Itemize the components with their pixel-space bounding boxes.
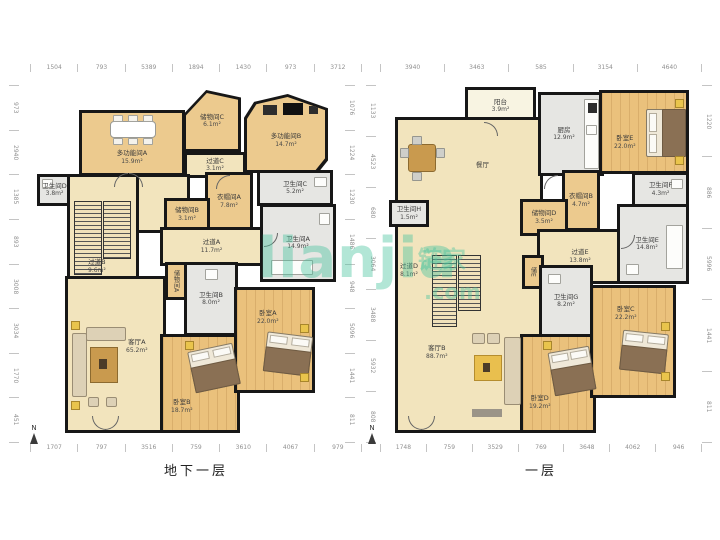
room-label: 过道D8.1m² <box>400 263 418 278</box>
dimension-label: 1220 <box>702 85 712 156</box>
chair-icon <box>436 148 445 158</box>
dimension-label: 3154 <box>573 64 637 72</box>
room-label: 多功能间B14.7m² <box>271 133 301 148</box>
room-label: 卧室A22.0m² <box>257 310 279 325</box>
door-arc-icon <box>129 173 143 187</box>
bed-icon <box>187 343 241 394</box>
room-bed-b: 卧室B18.7m² <box>163 337 237 430</box>
dimension-label: 797 <box>77 444 124 452</box>
room-corridor-a: 过道A11.7m² <box>163 230 260 263</box>
dining-table-icon <box>408 144 436 172</box>
side-table-icon <box>71 321 80 330</box>
room-label: 卧室B18.7m² <box>171 399 193 414</box>
dimension-label: 1770 <box>9 353 19 398</box>
compass-label: N <box>369 424 374 432</box>
dimension-label: 3610 <box>219 444 266 452</box>
chair-icon <box>412 172 422 181</box>
first-dims-bottom: 1748759352976936484062946 <box>380 444 702 452</box>
dimension-label: 3064 <box>366 238 376 289</box>
stairs-icon <box>74 201 102 275</box>
dimension-label: 585 <box>508 64 572 72</box>
armchair-icon <box>472 333 485 344</box>
dimension-label: 2940 <box>9 130 19 175</box>
room-label: 储物间B3.1m² <box>175 207 199 222</box>
basement-floorplan: 多功能间A15.9m² 储物间C6.1m² 多功能间B14.7m² 过道C3.1… <box>30 85 362 447</box>
room-kitchen: 厨房12.9m² <box>541 95 601 173</box>
sink-icon <box>42 179 53 188</box>
room-label: 厨房12.9m² <box>553 127 575 142</box>
compass-needle-icon <box>30 433 38 444</box>
room-bath-h: 卫生间H1.5m² <box>392 203 426 224</box>
dimension-label: 4523 <box>366 136 376 187</box>
room-label: 卫生间B8.0m² <box>199 292 223 307</box>
basement-dims-top: 15047935389189414309733712 <box>30 64 362 72</box>
room-corridor-c: 过道C3.1m² <box>187 155 243 175</box>
chair-icon <box>128 138 138 145</box>
decor-icon <box>99 359 107 369</box>
room-bath-d: 卫生间D3.8m² <box>40 177 69 203</box>
basement-dims-right: 107612241230148694850961441811 <box>345 85 355 443</box>
room-label: 阳台3.9m² <box>492 99 510 114</box>
dimension-label: 4640 <box>637 64 702 72</box>
room-label: 储物间C6.1m² <box>200 114 224 129</box>
basement-dims-left: 97329401385893300830341770451 <box>9 85 19 443</box>
dimension-label: 1133 <box>366 85 376 136</box>
stairs-icon <box>103 201 131 259</box>
chair-icon <box>113 115 123 122</box>
speaker-icon <box>309 106 318 114</box>
room-label: 卫生间E14.8m² <box>635 237 659 252</box>
cabinet-icon <box>283 103 303 115</box>
room-label: 过道C3.1m² <box>206 158 224 173</box>
basement-dims-bottom: 1707797351675936104067979 <box>30 444 362 452</box>
toilet-icon <box>205 269 218 280</box>
nightstand-icon <box>300 373 309 382</box>
room-label: 客厅A65.2m² <box>126 339 148 354</box>
room-balcony: 阳台3.9m² <box>468 90 533 122</box>
room-label: 卫生间G8.2m² <box>554 294 579 309</box>
room-label: 衣帽间B4.7m² <box>569 193 593 208</box>
dimension-label: 759 <box>426 444 472 452</box>
bathtub-icon <box>271 260 313 275</box>
dimension-label: 4067 <box>266 444 313 452</box>
chair-icon <box>400 148 409 158</box>
dimension-label: 811 <box>345 397 355 443</box>
room-label: 多功能间A15.9m² <box>117 150 147 165</box>
dimension-label: 973 <box>9 85 19 130</box>
room-label: 储物间A <box>172 270 181 292</box>
dimension-label: 5096 <box>345 308 355 353</box>
dimension-label: 3529 <box>472 444 518 452</box>
dimension-label: 3034 <box>9 308 19 353</box>
dimension-label: 3008 <box>9 264 19 309</box>
room-storage-c: 储物间C6.1m² <box>183 90 241 152</box>
room-label: 客厅B88.7m² <box>426 345 448 360</box>
armchair-icon <box>88 397 99 407</box>
stairs-icon <box>432 255 457 327</box>
nightstand-icon <box>675 156 684 165</box>
dimension-label: 1894 <box>172 64 219 72</box>
room-corridor-b: 过道B9.6m² <box>70 177 136 279</box>
dimension-label: 973 <box>266 64 313 72</box>
compass-north: N <box>28 424 40 444</box>
dimension-label: 811 <box>702 371 712 443</box>
room-cloak-b: 衣帽间B4.7m² <box>565 173 597 228</box>
nightstand-icon <box>661 322 670 331</box>
first-floorplan: 阳台3.9m² 餐厅 客厅B88.7m² 过道D8.1m² <box>368 85 710 447</box>
dimension-label: 3940 <box>380 64 444 72</box>
room-label: 卫生间C5.2m² <box>283 181 307 196</box>
sofa-icon <box>72 333 87 397</box>
room-bed-e: 卧室E22.0m² <box>602 93 686 171</box>
chair-icon <box>412 136 422 145</box>
first-floor-caption: 一层 <box>380 460 702 479</box>
dimension-label: 793 <box>77 64 124 72</box>
chair-icon <box>128 115 138 122</box>
chair-icon <box>143 138 153 145</box>
toilet-icon <box>319 213 330 225</box>
sink-icon <box>671 179 683 189</box>
room-bed-d: 卧室D19.2m² <box>523 337 593 430</box>
room-label: 衣帽间A7.8m² <box>217 194 241 209</box>
dimension-label: 759 <box>172 444 219 452</box>
dimension-label: 1504 <box>30 64 77 72</box>
decor-icon <box>483 363 490 372</box>
dimension-label: 3516 <box>125 444 172 452</box>
room-label: 过道E13.8m² <box>569 249 591 264</box>
dimension-label: 979 <box>314 444 362 452</box>
dimension-label: 3648 <box>563 444 609 452</box>
toilet-icon <box>548 274 561 284</box>
chair-icon <box>113 138 123 145</box>
first-dims-left: 11334523680306434885932808 <box>366 85 376 443</box>
dimension-label: 1230 <box>345 174 355 219</box>
toilet-icon <box>626 264 639 275</box>
dimension-label: 680 <box>366 187 376 238</box>
bed-icon <box>646 109 686 157</box>
first-dims-right: 122088659961441811 <box>702 85 712 443</box>
dimension-label: 5996 <box>702 228 712 299</box>
side-table-icon <box>71 401 80 410</box>
compass-label: N <box>31 424 36 432</box>
dimension-label: 886 <box>702 156 712 227</box>
bed-icon <box>263 331 314 376</box>
chair-icon <box>143 115 153 122</box>
compass-north: N <box>366 424 378 444</box>
room-storage-a: 储物间A <box>168 265 184 297</box>
room-multifunction-a: 多功能间A15.9m² <box>82 113 182 173</box>
dimension-label: 946 <box>655 444 702 452</box>
room-label: 卧室D19.2m² <box>529 395 551 410</box>
dimension-label: 1486 <box>345 219 355 264</box>
stairs-icon <box>458 255 481 311</box>
room-label: 卫生间F4.3m² <box>649 182 672 197</box>
stove-icon <box>588 103 597 113</box>
room-bed-c: 卧室C22.2m² <box>593 288 673 395</box>
room-label: 餐厅 <box>476 162 489 170</box>
dimension-label: 1441 <box>345 353 355 398</box>
tv-console-icon <box>472 409 502 417</box>
room-label: 储物间D3.5m² <box>532 210 557 225</box>
nightstand-icon <box>185 341 194 350</box>
armchair-icon <box>487 333 500 344</box>
dimension-label: 4062 <box>609 444 655 452</box>
bed-icon <box>547 346 596 397</box>
tv-icon <box>263 105 277 115</box>
room-bed-a: 卧室A22.0m² <box>237 290 312 390</box>
bed-icon <box>619 330 669 375</box>
room-multifunction-b: 多功能间B14.7m² <box>244 94 328 173</box>
room-storage-b: 储物间B3.1m² <box>167 201 207 228</box>
floorplan-image: 15047935389189414309733712 1707797351675… <box>0 0 720 540</box>
dimension-label: 5932 <box>366 340 376 391</box>
dimension-label: 769 <box>518 444 564 452</box>
room-label: 储E <box>529 267 538 277</box>
room-storage-d: 储物间D3.5m² <box>523 202 565 233</box>
room-label: 卧室E22.0m² <box>614 135 636 150</box>
dimension-label: 893 <box>9 219 19 264</box>
dimension-label: 3712 <box>314 64 362 72</box>
room-bath-c: 卫生间C5.2m² <box>260 173 330 203</box>
sofa-icon <box>504 337 521 405</box>
room-bath-f: 卫生间F4.3m² <box>635 175 686 204</box>
room-label: 过道A11.7m² <box>201 239 223 254</box>
room-living-a: 客厅A65.2m² <box>68 279 163 430</box>
room-label: 卫生间A14.9m² <box>286 236 310 251</box>
room-label: 卧室C22.2m² <box>615 306 637 321</box>
dimension-label: 1076 <box>345 85 355 130</box>
room-dining-living-b: 餐厅 客厅B88.7m² 过道D8.1m² <box>398 120 540 430</box>
room-storage-e: 储E <box>525 258 541 286</box>
dining-table-icon <box>110 121 156 138</box>
door-arc-icon <box>114 173 128 187</box>
dimension-label: 1441 <box>702 299 712 370</box>
dimension-label: 451 <box>9 397 19 443</box>
dimension-label: 1224 <box>345 130 355 175</box>
first-dims-top: 3940346358531544640 <box>380 64 702 72</box>
dimension-label: 1430 <box>219 64 266 72</box>
room-bath-b: 卫生间B8.0m² <box>187 265 235 333</box>
dimension-label: 3488 <box>366 289 376 340</box>
dimension-label: 1707 <box>30 444 77 452</box>
nightstand-icon <box>661 372 670 381</box>
room-label: 卫生间H1.5m² <box>397 206 421 221</box>
compass-needle-icon <box>368 433 376 444</box>
armchair-icon <box>106 397 117 407</box>
nightstand-icon <box>675 99 684 108</box>
sink-icon <box>314 177 327 187</box>
sofa-icon <box>86 327 126 341</box>
dimension-label: 1748 <box>380 444 426 452</box>
dimension-label: 948 <box>345 264 355 309</box>
basement-caption: 地下一层 <box>30 460 362 479</box>
dimension-label: 5389 <box>125 64 172 72</box>
bathtub-icon <box>666 225 683 269</box>
door-arc-icon <box>544 175 558 189</box>
dimension-label: 3463 <box>444 64 508 72</box>
nightstand-icon <box>300 324 309 333</box>
room-bath-g: 卫生间G8.2m² <box>542 268 590 334</box>
sink-icon <box>586 125 597 135</box>
dimension-label: 1385 <box>9 174 19 219</box>
nightstand-icon <box>543 341 552 350</box>
